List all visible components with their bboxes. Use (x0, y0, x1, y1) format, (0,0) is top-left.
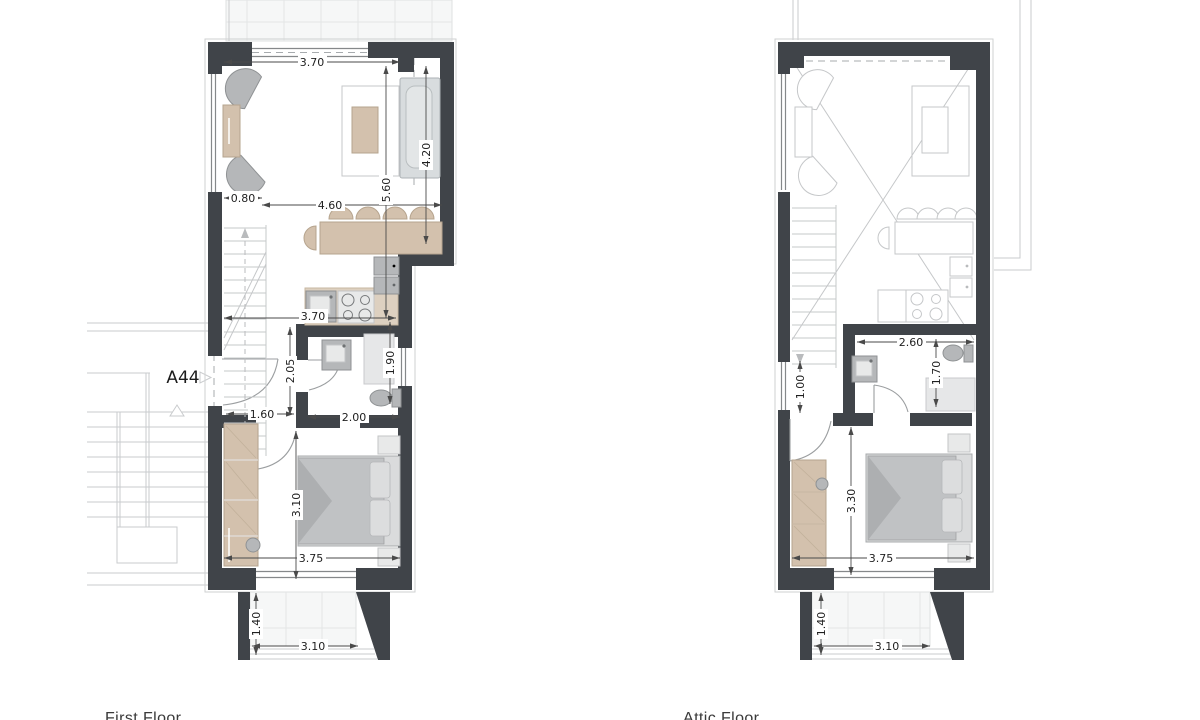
bed (866, 454, 972, 542)
sideboard (223, 105, 240, 157)
attic-staircase (792, 205, 836, 368)
unit-label: A44 (166, 354, 214, 408)
attic-floor-plan: 2.60 1.70 1.00 3.30 3.75 (775, 0, 1031, 660)
dining-table-below (895, 222, 973, 254)
chair-below (897, 208, 919, 219)
dim-niche: 0.80 (224, 191, 262, 205)
toilet-icon (370, 389, 401, 407)
svg-text:4.60: 4.60 (318, 199, 343, 212)
dining-chair (410, 207, 434, 219)
svg-text:3.75: 3.75 (299, 552, 324, 565)
armchair (218, 62, 262, 111)
svg-text:3.10: 3.10 (301, 640, 326, 653)
svg-text:1.60: 1.60 (250, 408, 275, 421)
nightstand (378, 548, 400, 566)
dim-hall-depth: 2.05 (283, 327, 297, 415)
svg-text:2.05: 2.05 (284, 359, 297, 384)
svg-text:0.80: 0.80 (231, 192, 256, 205)
balcony-wall (930, 592, 964, 660)
entrance-door (222, 359, 278, 405)
svg-text:1.00: 1.00 (794, 375, 807, 400)
coffee-table-below (922, 107, 948, 153)
floorplan-drawing: A44 (0, 0, 1200, 720)
roof-terrace-above (226, 0, 452, 41)
wardrobe (224, 424, 260, 566)
svg-text:1.70: 1.70 (930, 361, 943, 386)
svg-text:3.70: 3.70 (301, 310, 326, 323)
armchair-below (790, 155, 838, 204)
svg-text:1.40: 1.40 (250, 612, 263, 637)
chair-below (878, 227, 889, 249)
dim-window-width: 1.00 (793, 361, 807, 413)
attic-see-through-furniture (790, 63, 977, 322)
chair-below (917, 208, 939, 219)
bedroom-furniture (224, 424, 400, 566)
unit-number: A44 (166, 368, 199, 388)
svg-text:3.10: 3.10 (875, 640, 900, 653)
bed (298, 456, 400, 546)
dining-table (320, 222, 442, 254)
svg-text:3.70: 3.70 (300, 56, 325, 69)
armchair-below (790, 63, 834, 112)
svg-text:3.75: 3.75 (869, 552, 894, 565)
nightstand (948, 434, 970, 452)
sideboard-below (795, 107, 812, 157)
svg-text:3.30: 3.30 (845, 489, 858, 514)
bathroom-door (874, 385, 908, 413)
attic-bathroom-fixtures (852, 345, 975, 411)
coffee-table (352, 107, 378, 153)
nightstand (948, 544, 970, 562)
fridge (374, 257, 399, 294)
dining-furniture (304, 207, 442, 254)
counter-below (878, 290, 906, 322)
bedroom-window (782, 362, 786, 410)
chair-below (955, 208, 977, 219)
stool (246, 538, 260, 552)
living-room-furniture (218, 62, 440, 203)
stool (816, 478, 828, 490)
bathroom-sink (852, 356, 877, 382)
svg-text:5.60: 5.60 (380, 178, 393, 203)
floorplan-sheet: A44 (0, 0, 1200, 720)
balcony-wall (356, 592, 390, 660)
dim-bedroom-depth: 3.30 (844, 427, 858, 575)
stove-below (906, 290, 948, 322)
svg-text:3.10: 3.10 (290, 493, 303, 518)
stair-up-arrow (241, 228, 249, 238)
stair-direction-arrow (170, 405, 184, 416)
fridge-below (950, 257, 972, 297)
terrace-door (256, 572, 356, 578)
first-floor-plan: A44 (87, 0, 456, 660)
bathroom-sink (322, 340, 351, 370)
svg-text:2.60: 2.60 (899, 336, 924, 349)
dining-chair (383, 207, 407, 219)
terrace-door (834, 572, 934, 578)
bedroom-door (790, 419, 831, 461)
toilet-icon (943, 345, 973, 362)
attic-bedroom-furniture (792, 434, 972, 566)
nightstand (378, 436, 400, 454)
dining-chair (356, 207, 380, 219)
external-staircase (87, 323, 208, 585)
svg-text:1.90: 1.90 (384, 351, 397, 376)
attic-floor-caption: Attic Floor (683, 710, 759, 720)
svg-text:4.20: 4.20 (420, 143, 433, 168)
svg-text:2.00: 2.00 (342, 411, 367, 424)
first-floor-caption: First Floor (105, 710, 181, 720)
svg-text:1.40: 1.40 (815, 612, 828, 637)
dining-chair (304, 226, 316, 250)
wardrobe (792, 460, 828, 566)
